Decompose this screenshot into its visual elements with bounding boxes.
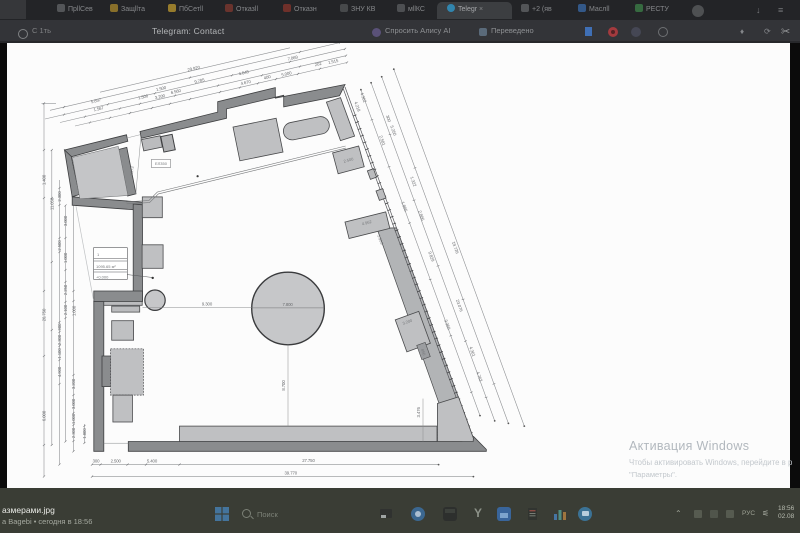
svg-text:1.805: 1.805 bbox=[400, 201, 408, 213]
svg-text:6.560: 6.560 bbox=[170, 88, 182, 95]
svg-text:8.700: 8.700 bbox=[281, 380, 286, 391]
svg-text:1.400: 1.400 bbox=[42, 174, 47, 185]
svg-text:29.920: 29.920 bbox=[187, 65, 201, 73]
svg-text:9.829: 9.829 bbox=[427, 251, 435, 263]
svg-text:19.726: 19.726 bbox=[451, 241, 460, 255]
svg-text:1.100: 1.100 bbox=[57, 348, 62, 359]
svg-text:3.000: 3.000 bbox=[63, 215, 68, 226]
svg-text:300: 300 bbox=[385, 114, 392, 123]
svg-text:5.897: 5.897 bbox=[90, 97, 102, 104]
svg-text:7.800: 7.800 bbox=[282, 302, 293, 307]
svg-text:11.050: 11.050 bbox=[49, 197, 54, 210]
svg-text:1.000: 1.000 bbox=[71, 305, 76, 316]
svg-text:ЕЛ350: ЕЛ350 bbox=[155, 161, 168, 166]
svg-text:6.000: 6.000 bbox=[42, 410, 47, 421]
svg-text:1.322: 1.322 bbox=[409, 176, 417, 188]
svg-text:2.300: 2.300 bbox=[57, 191, 62, 202]
svg-text:300: 300 bbox=[93, 459, 101, 464]
svg-text:1.000: 1.000 bbox=[71, 413, 76, 424]
svg-text:4.362: 4.362 bbox=[359, 92, 367, 104]
svg-text:2.806: 2.806 bbox=[417, 210, 425, 222]
svg-text:3.476: 3.476 bbox=[416, 406, 421, 417]
svg-text:26.750: 26.750 bbox=[42, 308, 47, 321]
svg-text:1.500: 1.500 bbox=[137, 93, 149, 100]
svg-text:27.750: 27.750 bbox=[302, 458, 315, 463]
svg-text:3.000: 3.000 bbox=[71, 398, 76, 409]
svg-text:2.500: 2.500 bbox=[57, 240, 62, 251]
svg-text:2.300: 2.300 bbox=[71, 427, 76, 438]
svg-text:4.573: 4.573 bbox=[129, 165, 135, 176]
svg-text:4.218: 4.218 bbox=[353, 101, 361, 113]
svg-text:9.785: 9.785 bbox=[194, 77, 206, 84]
svg-text:3.200: 3.200 bbox=[71, 378, 76, 389]
svg-text:7.069: 7.069 bbox=[287, 54, 299, 61]
svg-text:400: 400 bbox=[263, 74, 272, 81]
svg-text:23.076: 23.076 bbox=[455, 299, 464, 313]
svg-text:900: 900 bbox=[57, 323, 62, 331]
svg-text:5.400: 5.400 bbox=[147, 459, 158, 464]
svg-text:2.300: 2.300 bbox=[57, 334, 62, 345]
svg-text:1.800: 1.800 bbox=[82, 428, 87, 439]
svg-text:4.762: 4.762 bbox=[475, 371, 483, 383]
svg-text:2.500: 2.500 bbox=[111, 459, 122, 464]
svg-text:1.515: 1.515 bbox=[328, 58, 340, 65]
svg-text:2.250: 2.250 bbox=[63, 284, 68, 295]
svg-text:5.250: 5.250 bbox=[389, 125, 397, 137]
svg-text:1095.65 м²: 1095.65 м² bbox=[96, 264, 116, 269]
svg-text:+0.000: +0.000 bbox=[96, 274, 109, 279]
svg-text:2.100: 2.100 bbox=[63, 304, 68, 315]
svg-text:9.300: 9.300 bbox=[202, 302, 213, 307]
svg-text:39.770: 39.770 bbox=[285, 471, 298, 476]
svg-text:1.000: 1.000 bbox=[63, 252, 68, 263]
svg-text:3.350: 3.350 bbox=[443, 319, 451, 331]
svg-text:4.900: 4.900 bbox=[57, 366, 62, 377]
svg-text:1.567: 1.567 bbox=[93, 105, 105, 112]
svg-text:4.648: 4.648 bbox=[238, 69, 250, 76]
